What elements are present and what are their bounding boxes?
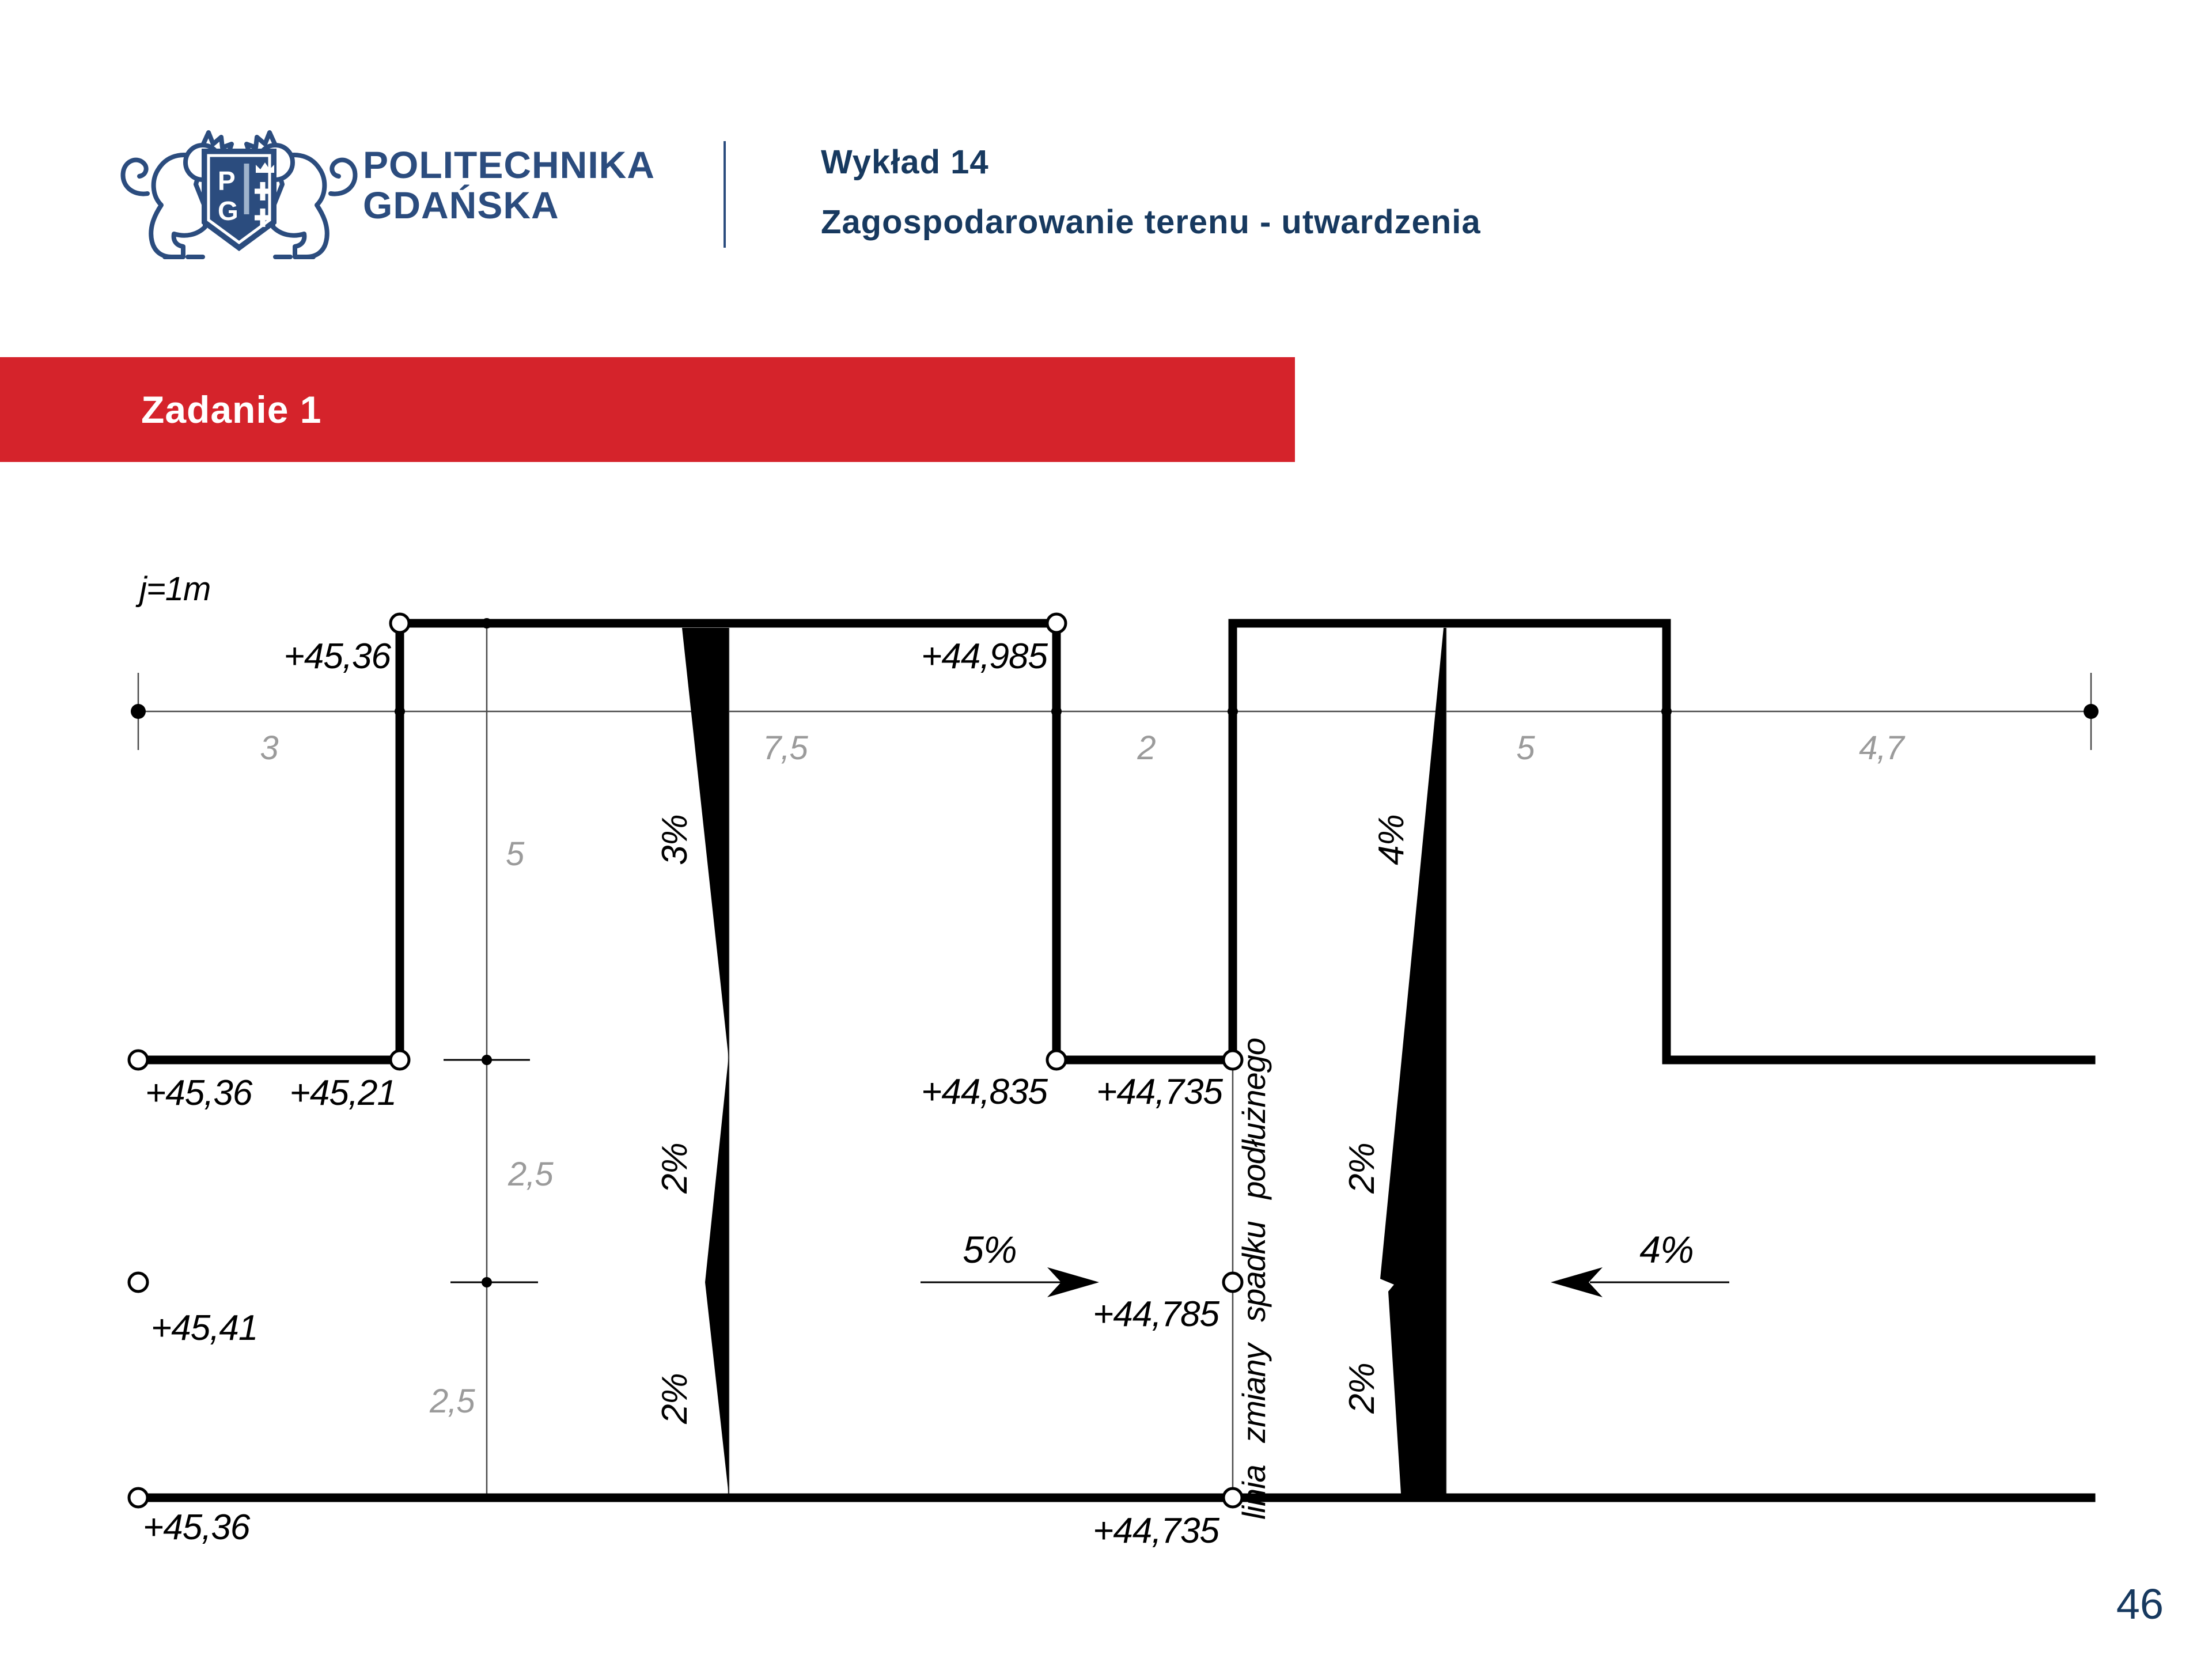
- elevation-top-right: +44,985: [921, 637, 1048, 676]
- h-dimension-labels: 3 7,5 2 5 4,7: [260, 729, 1906, 767]
- elevation-bottom-left: +45,36: [143, 1508, 251, 1547]
- elevation-mid-right-a: +44,835: [921, 1072, 1048, 1112]
- elevation-mid-left-b: +45,21: [290, 1073, 396, 1113]
- elevation-row3-right: +44,785: [1093, 1294, 1219, 1334]
- slope-2pct-r-mid: 2%: [1342, 1143, 1382, 1194]
- slope-2pct-l-bot: 2%: [655, 1373, 695, 1425]
- elevation-bottom-right: +44,735: [1093, 1511, 1219, 1551]
- node-circle: [391, 1051, 409, 1069]
- scale-label: j=1m: [135, 570, 210, 608]
- dim-7-5: 7,5: [763, 729, 808, 767]
- dimension-dots: [131, 618, 2099, 1287]
- slope-4pct: 4%: [1372, 815, 1411, 865]
- node-circle: [1047, 614, 1066, 632]
- node-circle: [129, 1488, 147, 1507]
- slope-arrow-4pct: [1551, 1267, 1729, 1297]
- wedge-4pct-right: [1380, 628, 1446, 1494]
- v-dimension-labels: 5 2,5 2,5: [429, 835, 554, 1420]
- dim-5: 5: [1516, 729, 1535, 767]
- dim-v-2-5-lower: 2,5: [429, 1382, 475, 1420]
- slope-arrow-4pct-label: 4%: [1639, 1228, 1693, 1271]
- pavement-outline: [138, 623, 2091, 1498]
- page-number: 46: [2116, 1580, 2164, 1628]
- dim-3: 3: [260, 729, 278, 767]
- node-circle: [1047, 1051, 1066, 1069]
- elevation-mid-right-b: +44,735: [1096, 1072, 1223, 1112]
- slope-arrow-5pct: [921, 1267, 1099, 1297]
- slope-arrow-5pct-label: 5%: [963, 1228, 1016, 1271]
- dim-v-2-5-upper: 2,5: [507, 1156, 554, 1193]
- dim-2: 2: [1137, 729, 1156, 767]
- wedge-2pct-left: [705, 1056, 729, 1495]
- node-circle: [129, 1273, 147, 1291]
- dim-4-7: 4,7: [1859, 729, 1906, 767]
- node-circle: [129, 1051, 147, 1069]
- dim-v-5: 5: [506, 835, 525, 873]
- elevation-top-left: +45,36: [284, 637, 392, 676]
- slope-3pct: 3%: [655, 815, 695, 865]
- slide-page: { "colors": { "navy": "#17395f", "logo_n…: [0, 0, 2212, 1659]
- elevation-row3-left: +45,41: [151, 1308, 257, 1348]
- vertical-note: linia zmiany spadku podłużnego: [1236, 1038, 1272, 1520]
- slope-2pct-r-bot: 2%: [1342, 1363, 1382, 1414]
- slope-2pct-l-mid: 2%: [655, 1143, 695, 1194]
- node-circle: [391, 614, 409, 632]
- site-plan-drawing: j=1m +45,36 +44,985 +45,36 +45,21 +44,83…: [0, 0, 2212, 1659]
- elevation-mid-left-a: +45,36: [145, 1073, 253, 1113]
